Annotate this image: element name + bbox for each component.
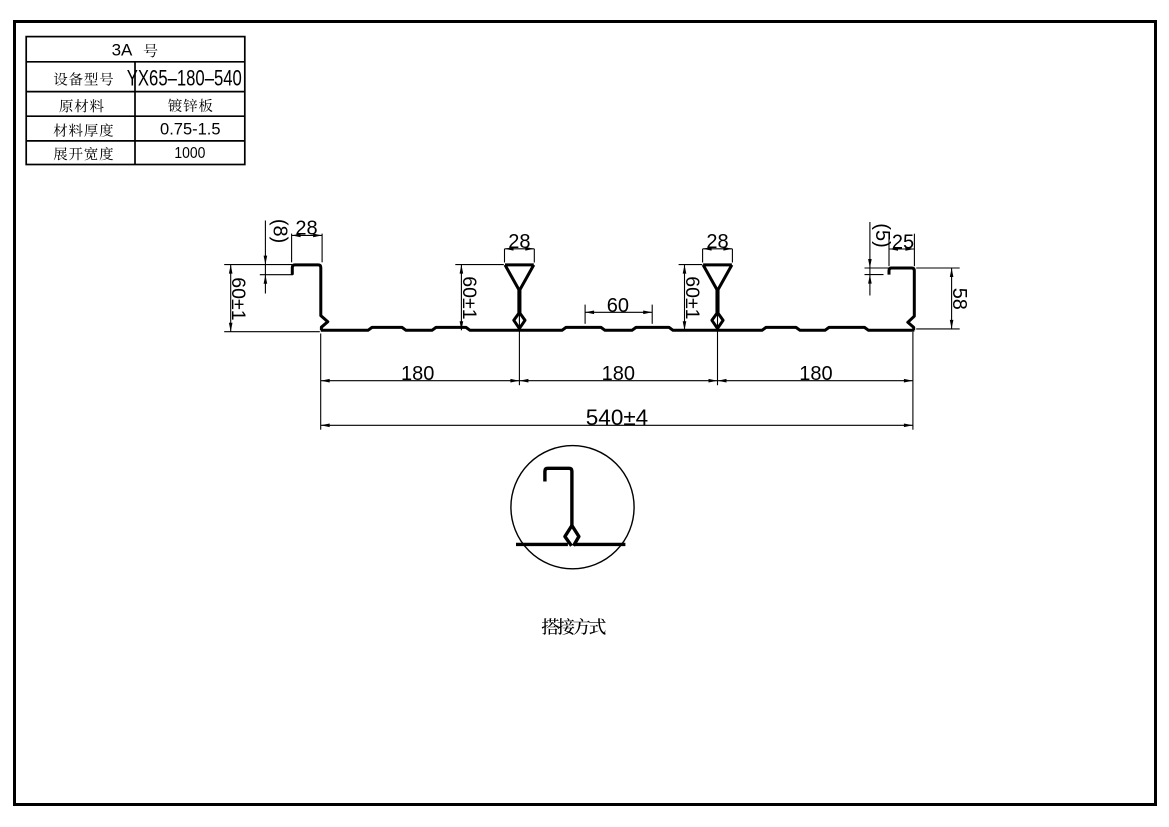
svg-text:0.75-1.5: 0.75-1.5 (160, 120, 221, 138)
svg-text:(5): (5) (871, 223, 893, 247)
svg-text:60: 60 (607, 295, 629, 317)
svg-text:180: 180 (401, 363, 434, 385)
svg-text:60±1: 60±1 (681, 276, 703, 319)
svg-text:28: 28 (508, 231, 530, 253)
svg-text:1000: 1000 (174, 145, 205, 162)
svg-text:60±1: 60±1 (227, 277, 249, 320)
svg-text:(8): (8) (268, 219, 290, 243)
svg-text:60±1: 60±1 (458, 276, 480, 319)
svg-text:25: 25 (892, 232, 914, 254)
svg-text:180: 180 (799, 363, 832, 385)
svg-text:540±4: 540±4 (586, 405, 648, 430)
svg-text:180: 180 (602, 363, 635, 385)
svg-text:58: 58 (948, 288, 970, 310)
svg-text:28: 28 (295, 218, 317, 240)
svg-text:3A: 3A (112, 40, 133, 59)
svg-text:YX65–180–540: YX65–180–540 (127, 66, 242, 91)
svg-text:28: 28 (706, 231, 728, 253)
